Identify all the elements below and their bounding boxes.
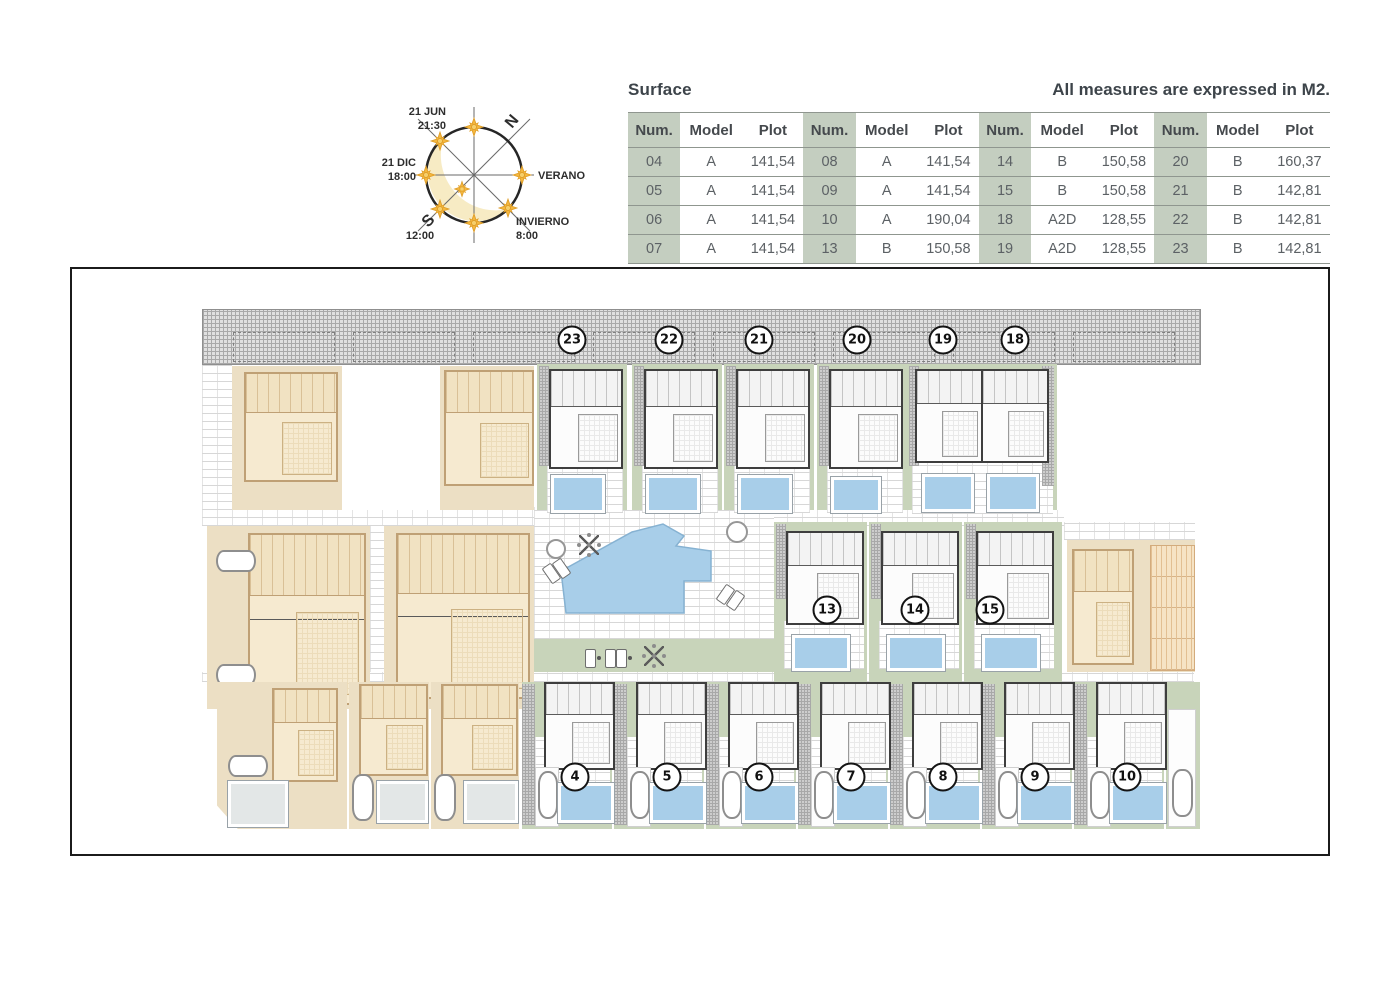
- umbrella-dot: [597, 656, 601, 660]
- neighbor-villa-footprint: [1072, 549, 1134, 665]
- unit-badge-14: 14: [901, 596, 930, 625]
- parking-bay: [353, 332, 455, 362]
- car-icon: [352, 774, 374, 821]
- page: 21 JUN 21:30 21 DIC 18:00 N S VERANO INV…: [0, 0, 1400, 989]
- villa-footprint-9: [1004, 682, 1075, 770]
- sidewalk: [202, 364, 232, 510]
- neighbor-villa-footprint: [359, 684, 428, 776]
- unit-badge-6: 6: [745, 763, 774, 792]
- side-passage: [614, 684, 627, 825]
- cell-num: 21: [1154, 177, 1206, 206]
- cell-plot: 142,81: [1269, 177, 1330, 206]
- col-header-plot: Plot: [1269, 113, 1330, 148]
- side-passage: [890, 684, 903, 825]
- side-passage: [871, 524, 881, 599]
- pool: [831, 477, 881, 513]
- parking-road-band: [202, 309, 1201, 365]
- noon-time-label: 12:00: [406, 230, 434, 242]
- unit-badge-19: 19: [929, 326, 958, 355]
- car-icon: [630, 771, 650, 819]
- cell-num: 13: [803, 235, 855, 264]
- unit-badge-4: 4: [561, 763, 590, 792]
- car-icon: [1090, 771, 1110, 819]
- side-passage: [522, 684, 535, 825]
- umbrella-dot: [628, 656, 632, 660]
- side-passage: [819, 366, 829, 466]
- cell-model: A: [680, 148, 742, 177]
- villa-footprint-8: [912, 682, 983, 770]
- cell-plot: 128,55: [1093, 206, 1154, 235]
- cell-num: 09: [803, 177, 855, 206]
- car-icon: [722, 771, 742, 819]
- car-icon: [538, 771, 558, 819]
- car-icon: [228, 755, 268, 777]
- table-row: 06A141,5410A190,0418A2D128,5522B142,81: [628, 206, 1330, 235]
- hatched-terrace: [1150, 545, 1195, 671]
- unit-badge-9: 9: [1021, 763, 1050, 792]
- side-passage: [776, 524, 786, 599]
- summer-label: VERANO: [538, 170, 586, 182]
- units-note: All measures are expressed in M2.: [1052, 80, 1330, 100]
- villa-footprint-4: [544, 682, 615, 770]
- cell-plot: 128,55: [1093, 235, 1154, 264]
- villa-footprint-5: [636, 682, 707, 770]
- sun-compass-diagram: 21 JUN 21:30 21 DIC 18:00 N S VERANO INV…: [360, 85, 590, 253]
- pool: [792, 635, 850, 671]
- cell-plot: 190,04: [918, 206, 979, 235]
- patio-slab: [377, 781, 428, 823]
- cell-model: A: [680, 177, 742, 206]
- parking-bay: [233, 332, 335, 362]
- cell-model: B: [856, 235, 918, 264]
- cell-plot: 150,58: [1093, 148, 1154, 177]
- villa-footprint-20: [829, 369, 903, 469]
- car-icon: [434, 774, 456, 821]
- side-passage: [798, 684, 811, 825]
- col-header-model: Model: [856, 113, 918, 148]
- pool: [551, 475, 605, 513]
- car-icon: [998, 771, 1018, 819]
- neighbor-duplex-footprint: [248, 533, 366, 705]
- neighbor-villa-footprint: [441, 684, 518, 776]
- side-passage: [539, 366, 549, 466]
- pool: [887, 635, 945, 671]
- side-passage: [966, 524, 976, 599]
- col-header-model: Model: [1207, 113, 1269, 148]
- cell-num: 22: [1154, 206, 1206, 235]
- cell-plot: 150,58: [1093, 177, 1154, 206]
- unit-badge-10: 10: [1113, 763, 1142, 792]
- site-plan: 23 22 21 20 19 18 13 14 15 4 5 6 7 8 9 1…: [70, 267, 1330, 856]
- side-passage: [726, 366, 736, 466]
- cell-num: 05: [628, 177, 680, 206]
- cell-model: A: [856, 177, 918, 206]
- cell-plot: 160,37: [1269, 148, 1330, 177]
- cell-model: B: [1207, 148, 1269, 177]
- col-header-plot: Plot: [918, 113, 979, 148]
- cell-num: 19: [979, 235, 1031, 264]
- surface-table: Num.ModelPlotNum.ModelPlotNum.ModelPlotN…: [628, 112, 1330, 264]
- unit-badge-8: 8: [929, 763, 958, 792]
- surface-table-title: Surface: [628, 80, 692, 100]
- pool: [922, 474, 974, 512]
- table-chairs-icon: [579, 535, 599, 555]
- car-icon: [906, 771, 926, 819]
- cell-num: 10: [803, 206, 855, 235]
- parking-bay: [1073, 332, 1175, 362]
- dec-time-label: 18:00: [388, 171, 416, 183]
- villa-footprint-21: [736, 369, 810, 469]
- sun-lounger-icon: [616, 649, 627, 668]
- north-label: N: [502, 112, 522, 132]
- pool: [982, 635, 1040, 671]
- sun-lounger-icon: [585, 649, 596, 668]
- cell-num: 15: [979, 177, 1031, 206]
- cell-model: A: [680, 206, 742, 235]
- col-header-model: Model: [680, 113, 742, 148]
- unit-badge-13: 13: [813, 596, 842, 625]
- cell-plot: 141,54: [918, 148, 979, 177]
- unit-badge-15: 15: [976, 596, 1005, 625]
- side-passage: [706, 684, 719, 825]
- car-icon: [814, 771, 834, 819]
- cell-plot: 142,81: [1269, 235, 1330, 264]
- cell-num: 06: [628, 206, 680, 235]
- villa-footprint-18: [981, 369, 1049, 463]
- unit-badge-23: 23: [558, 326, 587, 355]
- patio-slab: [228, 781, 288, 827]
- jun-date-label: 21 JUN: [409, 106, 446, 118]
- col-header-num: Num.: [628, 113, 680, 148]
- table-chairs-icon: [644, 646, 664, 666]
- car-icon: [1172, 769, 1193, 817]
- cell-model: A2D: [1031, 235, 1093, 264]
- cell-num: 20: [1154, 148, 1206, 177]
- col-header-plot: Plot: [742, 113, 803, 148]
- winter-time-label: 8:00: [516, 230, 538, 242]
- cell-num: 08: [803, 148, 855, 177]
- cell-plot: 141,54: [742, 206, 803, 235]
- side-passage: [634, 366, 644, 466]
- cell-model: B: [1031, 177, 1093, 206]
- unit-badge-5: 5: [653, 763, 682, 792]
- col-header-model: Model: [1031, 113, 1093, 148]
- col-header-num: Num.: [1154, 113, 1206, 148]
- cell-plot: 141,54: [742, 177, 803, 206]
- unit-badge-18: 18: [1001, 326, 1030, 355]
- col-header-num: Num.: [803, 113, 855, 148]
- side-passage: [1074, 684, 1087, 825]
- col-header-plot: Plot: [1093, 113, 1154, 148]
- cell-model: A2D: [1031, 206, 1093, 235]
- cell-num: 07: [628, 235, 680, 264]
- unit-badge-22: 22: [655, 326, 684, 355]
- cell-num: 04: [628, 148, 680, 177]
- villa-footprint-7: [820, 682, 891, 770]
- cell-model: B: [1031, 148, 1093, 177]
- neighbor-villa-footprint: [244, 372, 338, 482]
- villa-footprint-22: [644, 369, 718, 469]
- dec-date-label: 21 DIC: [382, 157, 416, 169]
- table-row: 05A141,5409A141,5415B150,5821B142,81: [628, 177, 1330, 206]
- cell-model: B: [1207, 177, 1269, 206]
- car-icon: [216, 550, 256, 572]
- neighbor-duplex-footprint: [396, 533, 530, 699]
- cell-model: B: [1207, 235, 1269, 264]
- neighbor-villa-footprint: [444, 370, 534, 486]
- cell-model: A: [856, 148, 918, 177]
- road: [1064, 522, 1195, 540]
- col-header-num: Num.: [979, 113, 1031, 148]
- villa-footprint-19: [915, 369, 983, 463]
- tree-icon: [546, 539, 566, 559]
- cell-plot: 142,81: [1269, 206, 1330, 235]
- pool: [987, 474, 1039, 512]
- cell-plot: 141,54: [918, 177, 979, 206]
- patio-slab: [464, 781, 518, 823]
- cell-plot: 141,54: [742, 148, 803, 177]
- cell-model: A: [680, 235, 742, 264]
- cell-num: 14: [979, 148, 1031, 177]
- sun-lounger-icon: [605, 649, 616, 668]
- table-row: 04A141,5408A141,5414B150,5820B160,37: [628, 148, 1330, 177]
- cell-num: 18: [979, 206, 1031, 235]
- side-passage: [982, 684, 995, 825]
- unit-badge-7: 7: [837, 763, 866, 792]
- winter-label: INVIERNO: [516, 216, 570, 228]
- unit-badge-20: 20: [843, 326, 872, 355]
- pool: [646, 475, 700, 513]
- header-row: Num.ModelPlotNum.ModelPlotNum.ModelPlotN…: [628, 113, 1330, 148]
- villa-footprint-23: [549, 369, 623, 469]
- cell-num: 23: [1154, 235, 1206, 264]
- cell-model: B: [1207, 206, 1269, 235]
- jun-time-label: 21:30: [418, 120, 446, 132]
- cell-plot: 150,58: [918, 235, 979, 264]
- cell-plot: 141,54: [742, 235, 803, 264]
- table-row: 07A141,5413B150,5819A2D128,5523B142,81: [628, 235, 1330, 264]
- pool: [738, 475, 792, 513]
- villa-footprint-6: [728, 682, 799, 770]
- cell-model: A: [856, 206, 918, 235]
- villa-footprint-10: [1096, 682, 1167, 770]
- neighbor-villa-footprint: [272, 688, 338, 782]
- tree-icon: [726, 521, 748, 543]
- unit-badge-21: 21: [745, 326, 774, 355]
